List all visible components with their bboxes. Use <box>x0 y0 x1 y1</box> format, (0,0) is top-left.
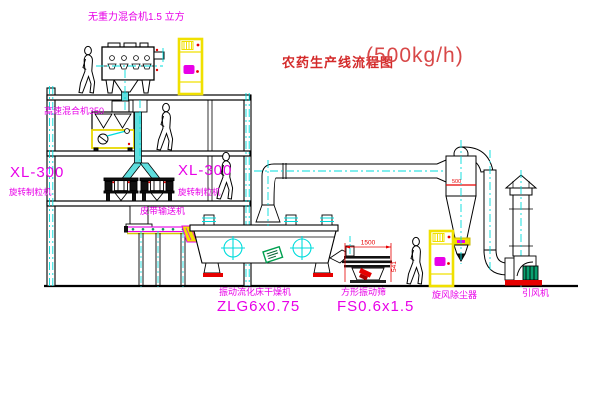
label-belt-conveyor: 皮带输送机 <box>140 207 185 216</box>
gravity-mixer <box>102 43 164 93</box>
duct-run <box>262 160 446 205</box>
label-granulator-right-name: 旋转制粒机 <box>178 188 221 197</box>
vibrating-screen: 1500 541 <box>342 236 398 283</box>
worker-icon <box>157 103 173 150</box>
dryer-feet <box>203 263 333 277</box>
leg-centerlines <box>141 231 183 287</box>
screen-height-dim: 541 <box>391 261 398 272</box>
middle-slab <box>47 151 250 156</box>
label-dryer-name: 振动流化床干燥机 <box>219 288 291 297</box>
label-granulator-right-model: XL-300 <box>178 163 232 178</box>
worker-icon <box>407 237 423 284</box>
screen-base-plate <box>350 280 386 283</box>
label-screen-model: FS0.6x1.5 <box>337 299 414 314</box>
belt-conveyor <box>124 226 204 287</box>
label-high-speed-mixer: 高速混合机350 <box>44 107 104 116</box>
label-dryer-model: ZLG6x0.75 <box>217 299 300 314</box>
drawing-title-capacity: (500kg/h) <box>366 44 464 68</box>
screen-width-dim: 1500 <box>361 240 376 247</box>
rotary-granulator-right <box>140 178 174 201</box>
label-granulator-left-name: 旋转制粒机 <box>9 188 52 197</box>
control-cabinet <box>430 231 453 286</box>
cyclone-dim: 500 <box>452 179 461 185</box>
cad-canvas: 1500 541 500 <box>0 0 600 403</box>
mixer-leg <box>106 80 114 93</box>
screen-decks <box>342 256 392 267</box>
worker-icon <box>79 46 95 93</box>
induced-draft-fan <box>505 256 542 286</box>
fan-motor <box>523 266 538 280</box>
conveyor-legs <box>139 233 185 285</box>
label-fan: 引风机 <box>522 289 549 298</box>
fluid-bed-dryer <box>190 215 350 277</box>
top-slab <box>47 95 250 100</box>
label-cyclone: 旋风除尘器 <box>432 291 477 300</box>
label-screen-name: 方形振动筛 <box>341 288 386 297</box>
control-cabinet <box>179 39 202 94</box>
rotary-granulator-left <box>104 178 138 201</box>
fan-base <box>505 280 542 286</box>
mixer-leg <box>142 80 150 93</box>
label-granulator-left-model: XL-300 <box>10 165 64 180</box>
mixer-discharge-cone <box>114 80 138 92</box>
label-gravity-mixer: 无重力混合机1.5 立方 <box>88 13 185 23</box>
